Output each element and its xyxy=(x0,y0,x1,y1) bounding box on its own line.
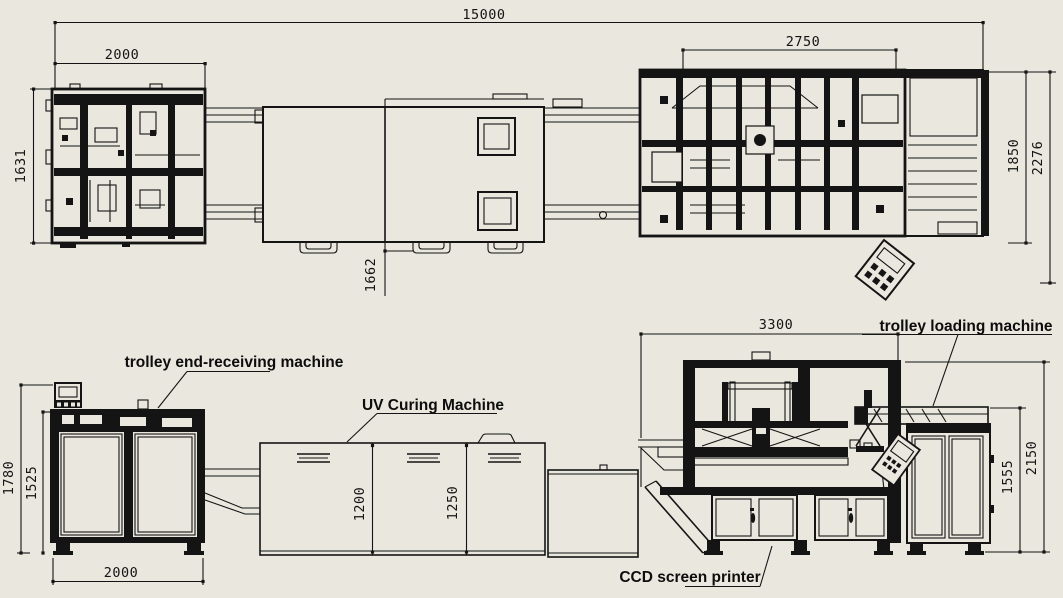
dim-text-1662: 1662 xyxy=(363,258,379,293)
uv-curing-machine-top-view xyxy=(255,94,544,253)
dim-end-machine-body-height-1525: 1525 xyxy=(24,410,53,554)
dim-text-2750: 2750 xyxy=(786,34,821,50)
transfer-conveyor-side xyxy=(205,469,260,514)
uv-vent-2 xyxy=(407,454,440,462)
dim-text-1780: 1780 xyxy=(1,461,17,496)
inspection-window-2 xyxy=(478,192,517,230)
dim-text-1525: 1525 xyxy=(24,466,40,501)
dim-text-1200: 1200 xyxy=(352,487,368,522)
dim-text-15000: 15000 xyxy=(462,7,505,23)
screen-lift-assembly xyxy=(722,382,798,452)
end-receiving-machine-side-view xyxy=(50,383,205,555)
dim-text-1250: 1250 xyxy=(445,486,461,521)
dim-end-machine-width-2000: 2000 xyxy=(54,47,207,88)
loader-feet xyxy=(907,543,984,555)
label-ccd-screen-printer: CCD screen printer xyxy=(619,546,772,587)
uv-curing-label-text: UV Curing Machine xyxy=(362,397,504,414)
dim-text-1850: 1850 xyxy=(1006,139,1022,174)
dim-text-2150: 2150 xyxy=(1024,441,1040,476)
end-receiving-machine-top-view xyxy=(46,84,205,248)
side-view: trolley end-receiving machine xyxy=(1,317,1053,587)
dim-text-3300: 3300 xyxy=(759,317,794,333)
uv-vent-1 xyxy=(297,454,330,462)
engineering-drawing-canvas: 15000 2000 1631 xyxy=(0,0,1063,598)
label-uv-curing-machine: UV Curing Machine xyxy=(347,397,504,442)
dim-text-1631: 1631 xyxy=(13,149,29,184)
dim-end-machine-width-2000-side: 2000 xyxy=(51,558,204,585)
dim-printer-width-2750: 2750 xyxy=(681,34,897,72)
uv-outfeed-box xyxy=(548,465,638,557)
control-panel-top-view xyxy=(856,240,914,300)
uv-vent-3 xyxy=(488,454,521,462)
dim-text-2000-top: 2000 xyxy=(105,47,140,63)
door-left xyxy=(61,434,122,535)
trolley-loading-machine-side-view xyxy=(855,390,994,555)
dim-printer-height-2150: 2150 xyxy=(905,360,1050,553)
dim-loader-height-1555: 1555 xyxy=(990,406,1026,553)
loader-vent-section-top-view xyxy=(905,70,989,236)
conveyor-rails-right xyxy=(544,99,640,219)
ccd-printer-label-text: CCD screen printer xyxy=(619,569,760,586)
top-view: 15000 2000 1631 xyxy=(13,7,1056,300)
uv-curing-machine-side-view: 1200 1250 xyxy=(260,434,638,557)
base-cabinet-2 xyxy=(815,495,888,540)
door-right xyxy=(135,434,195,535)
dim-uv-height-1250: 1250 xyxy=(445,443,468,555)
conveyor-rails-left xyxy=(205,108,263,219)
loader-cabinet xyxy=(907,424,994,543)
loading-label-text: trolley loading machine xyxy=(879,318,1052,335)
feet xyxy=(53,543,204,555)
dim-text-2000-bottom: 2000 xyxy=(104,565,139,581)
printer-feet xyxy=(704,540,893,555)
base-cabinet-1 xyxy=(712,495,797,540)
turntable-center xyxy=(746,126,774,154)
dim-text-2276: 2276 xyxy=(1030,141,1046,176)
dim-text-1555: 1555 xyxy=(1000,460,1016,495)
dim-loader-overall-depth-2276: 2276 xyxy=(1030,70,1056,284)
production-line-drawing: 15000 2000 1631 xyxy=(0,0,1063,598)
monitor xyxy=(54,383,82,408)
inspection-window-1 xyxy=(478,118,515,155)
label-end-receiving-machine: trolley end-receiving machine xyxy=(125,354,344,408)
end-receiving-label-text: trolley end-receiving machine xyxy=(125,354,344,371)
dim-conveyor-depth-1662: 1662 xyxy=(363,242,414,296)
dim-uv-height-1200: 1200 xyxy=(352,443,374,555)
